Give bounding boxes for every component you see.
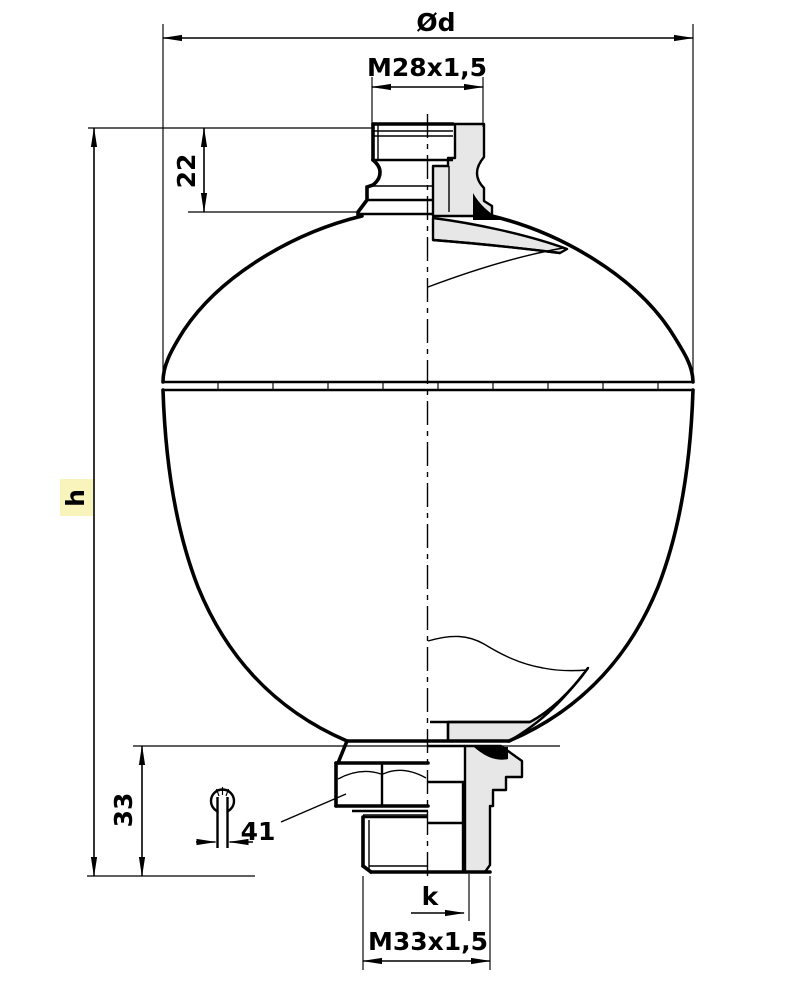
dim-label-diameter: Ød xyxy=(416,8,455,37)
top-port-section xyxy=(433,124,492,216)
shell-bottom-bowl-left xyxy=(163,390,347,741)
dim-wrench-size: 41 xyxy=(196,787,346,848)
dim-label-bottom-thread: M33x1,5 xyxy=(368,927,488,956)
leader-line xyxy=(281,794,346,822)
section-cut-areas xyxy=(433,124,588,872)
dim-label-41: 41 xyxy=(241,817,276,846)
wrench-jaw-gap xyxy=(219,796,227,848)
bottom-port-section xyxy=(465,746,522,872)
port-neck-profile xyxy=(358,160,380,216)
dim-label-22: 22 xyxy=(172,154,201,189)
wrench-icon xyxy=(211,787,234,848)
diaphragm-upper-position xyxy=(428,248,563,287)
dim-label-top-thread: M28x1,5 xyxy=(367,53,487,82)
dim-spigot-length: k xyxy=(411,874,469,921)
diaphragm-lower-position xyxy=(428,636,587,670)
dimensions: Ød M28x1,5 22 h 33 xyxy=(60,8,693,970)
shell-top-dome-left xyxy=(163,216,362,382)
hex-chamfer-arc xyxy=(338,771,381,779)
dim-top-port-height: 22 xyxy=(172,128,360,212)
shell-section-lower-band xyxy=(448,668,588,741)
dim-label-h: h xyxy=(61,489,90,507)
port-skirt xyxy=(338,741,347,763)
hex-chamfer-arc xyxy=(383,770,426,778)
accumulator-technical-drawing: Ød M28x1,5 22 h 33 xyxy=(0,0,794,982)
dim-overall-height: h xyxy=(60,128,255,876)
diaphragm-lines xyxy=(428,248,587,671)
weld-fillets xyxy=(473,193,508,760)
shell-bottom-bowl-right xyxy=(509,390,693,741)
dim-label-k: k xyxy=(422,882,440,911)
dim-label-33: 33 xyxy=(109,793,138,828)
drawing-page: Ød M28x1,5 22 h 33 xyxy=(0,0,794,982)
